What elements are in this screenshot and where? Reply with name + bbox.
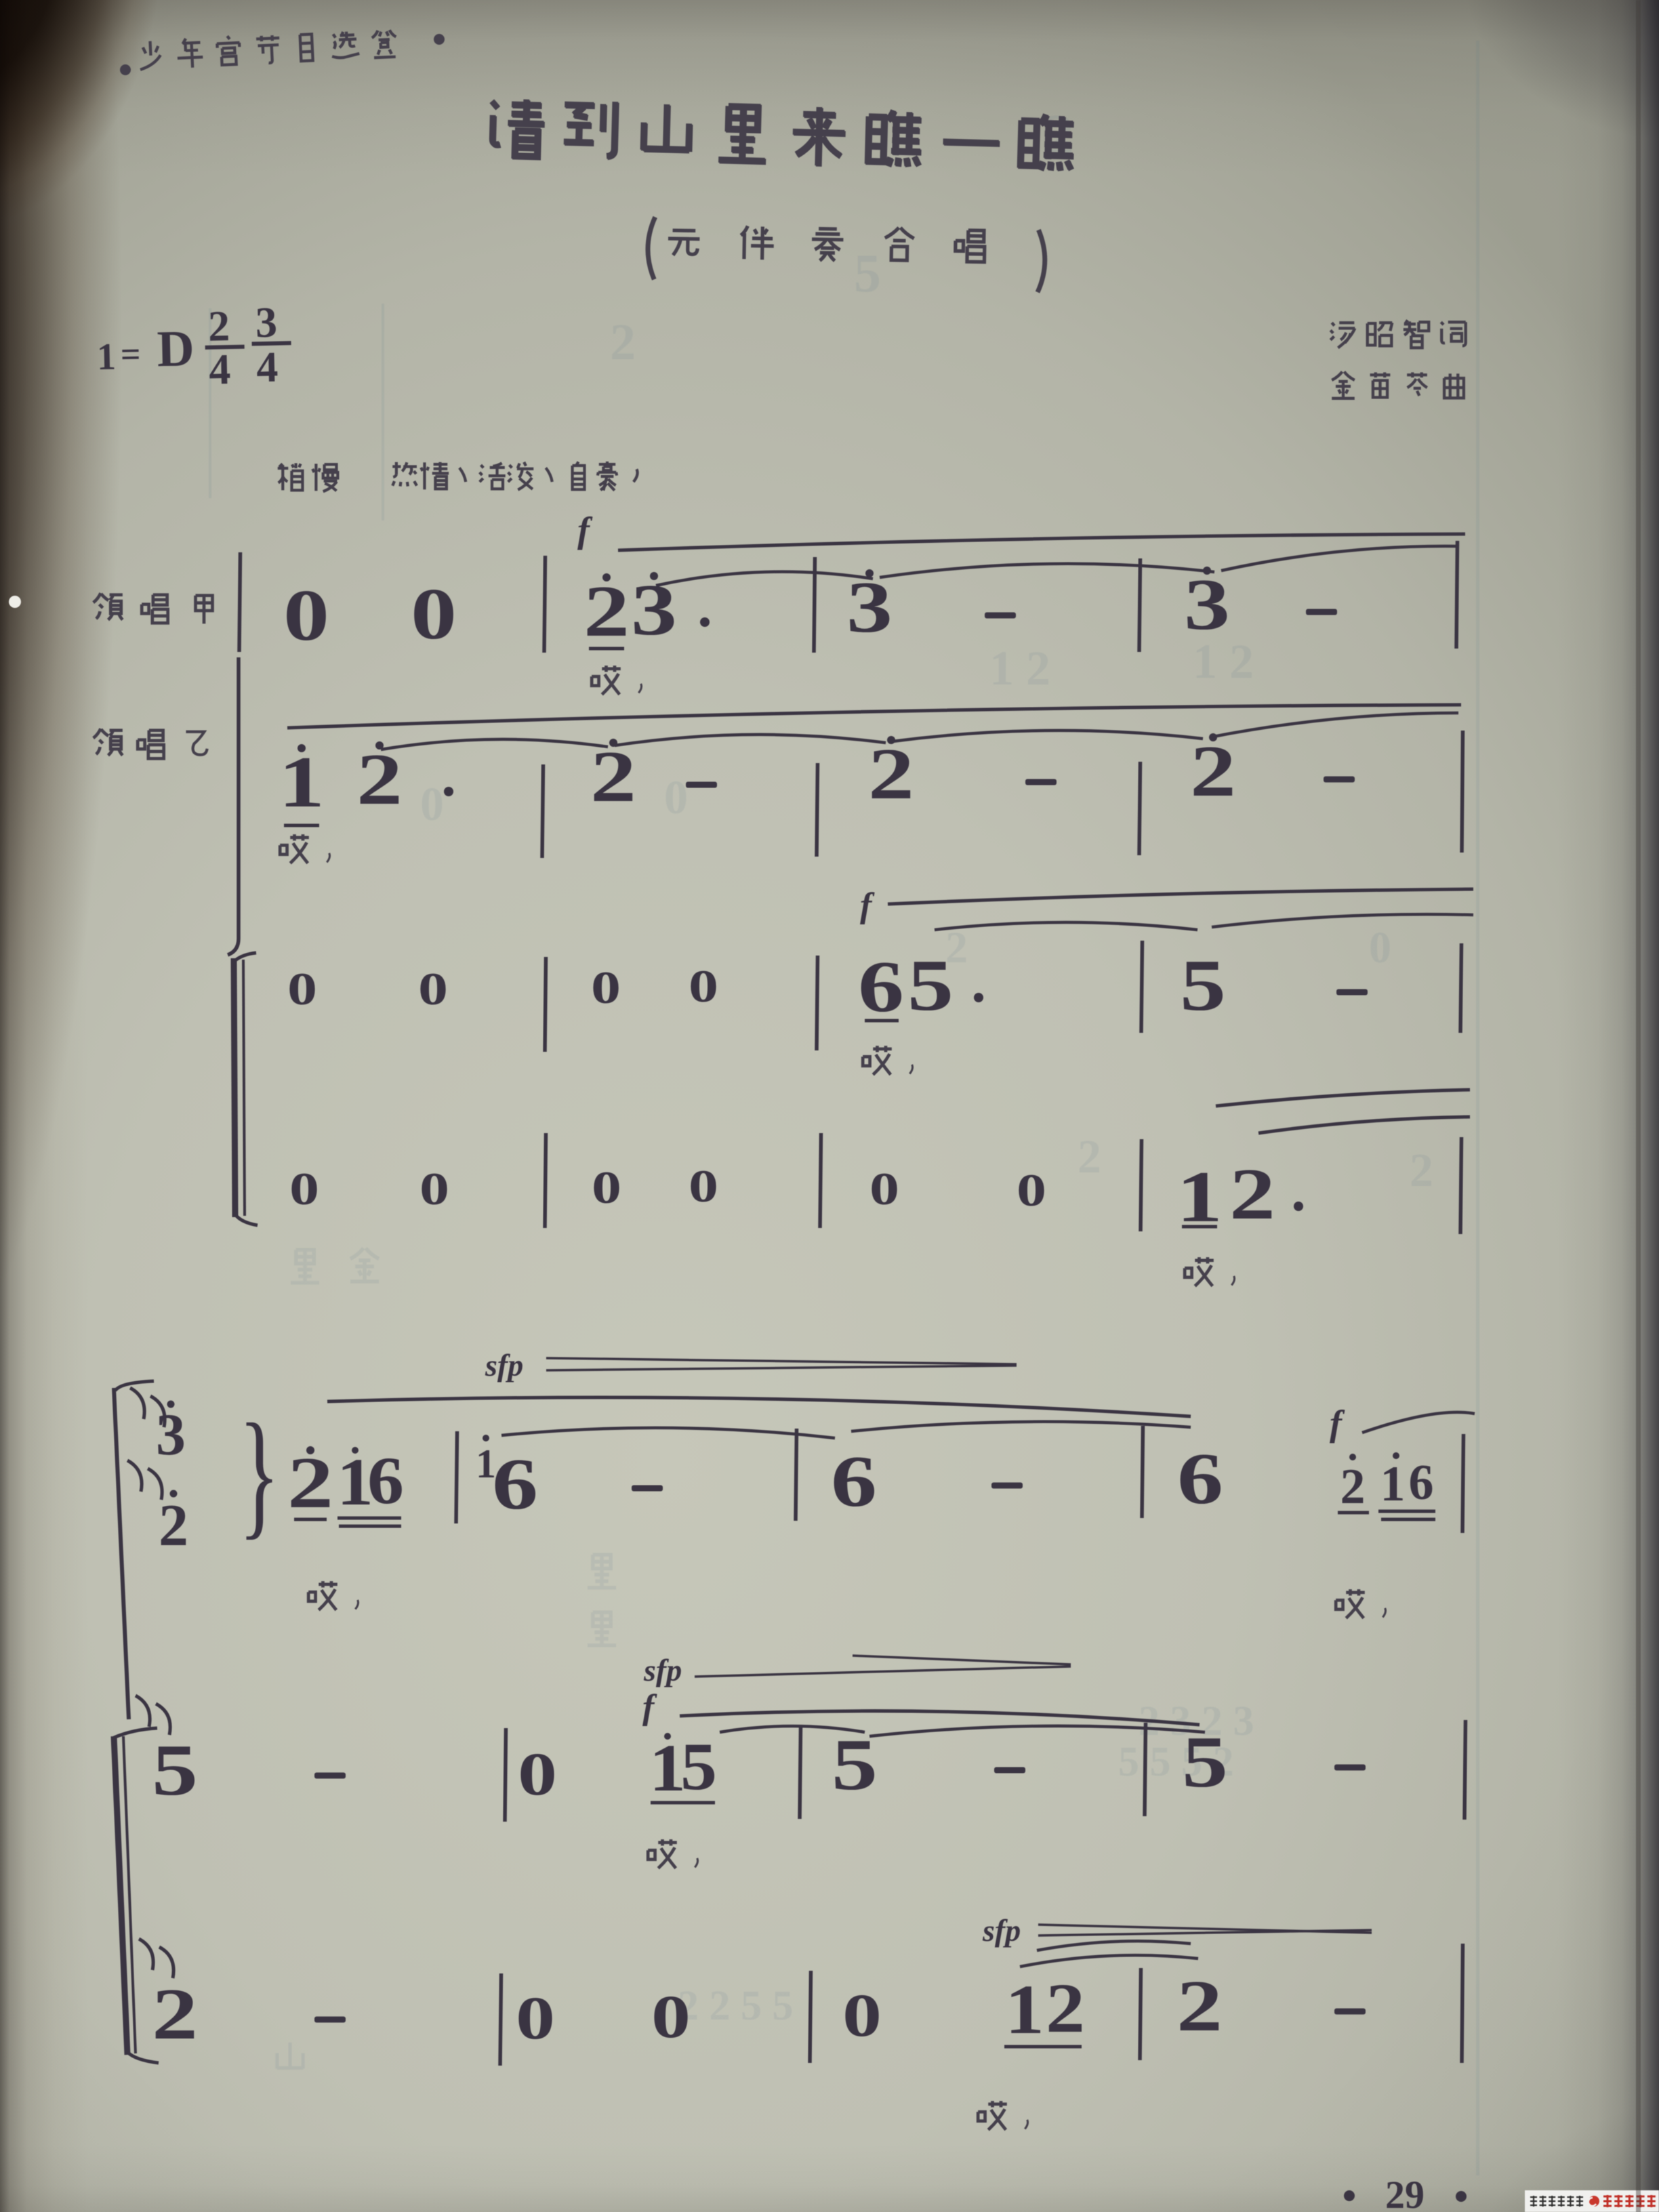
svg-text:5: 5: [907, 945, 954, 1026]
svg-text:5: 5: [1182, 1722, 1228, 1803]
svg-text:2: 2: [1176, 1966, 1223, 2047]
svg-text:0: 0: [1017, 1164, 1046, 1216]
svg-text:2: 2: [1046, 1969, 1085, 2047]
svg-text:f: f: [1330, 1403, 1345, 1443]
svg-text:0: 0: [420, 779, 444, 831]
svg-text:0: 0: [518, 1741, 557, 1808]
svg-text:3: 3: [255, 298, 277, 347]
svg-text:5: 5: [680, 1729, 717, 1804]
svg-text:0: 0: [287, 963, 317, 1015]
svg-text:4: 4: [209, 345, 231, 394]
svg-text:2: 2: [159, 1493, 188, 1559]
svg-text:2: 2: [1078, 1131, 1101, 1183]
svg-text:2: 2: [590, 737, 636, 817]
svg-text:f: f: [577, 510, 593, 550]
svg-text:0: 0: [689, 1160, 718, 1212]
svg-text:0: 0: [516, 1985, 555, 2052]
svg-text:1: 1: [96, 336, 116, 379]
svg-text:0: 0: [289, 1163, 319, 1214]
svg-text:2: 2: [583, 571, 630, 652]
svg-text:D: D: [157, 320, 195, 377]
svg-text:6: 6: [831, 1441, 877, 1522]
svg-text:sfp: sfp: [643, 1653, 682, 1687]
svg-text:f: f: [860, 886, 875, 925]
svg-text:3: 3: [1184, 565, 1230, 645]
svg-text:5: 5: [854, 244, 881, 304]
svg-text:1: 1: [279, 742, 325, 823]
svg-text:2: 2: [868, 734, 914, 815]
svg-text:2: 2: [207, 302, 230, 350]
svg-text:2: 2: [1410, 1145, 1433, 1197]
svg-text:0: 0: [283, 575, 329, 656]
svg-text:29: 29: [1385, 2173, 1425, 2212]
svg-text:0: 0: [1369, 923, 1391, 972]
svg-text:3: 3: [156, 1402, 186, 1468]
svg-text:2: 2: [152, 1974, 198, 2055]
svg-text:0: 0: [591, 962, 621, 1013]
svg-text:=: =: [120, 335, 141, 375]
svg-text:6: 6: [1409, 1455, 1434, 1511]
svg-text:0: 0: [419, 1163, 449, 1214]
svg-text:5: 5: [1180, 945, 1226, 1026]
svg-text:2: 2: [610, 314, 636, 371]
svg-text:6: 6: [1177, 1439, 1223, 1519]
svg-text:1: 1: [1005, 1971, 1044, 2049]
svg-text:0: 0: [592, 1162, 621, 1213]
svg-text:0: 0: [869, 1163, 899, 1214]
svg-text:2: 2: [1229, 1154, 1275, 1235]
svg-text:6: 6: [367, 1443, 404, 1518]
svg-text:2: 2: [1190, 731, 1236, 812]
svg-text:6: 6: [858, 947, 904, 1027]
svg-text:0: 0: [651, 1984, 691, 2051]
svg-text:0: 0: [418, 963, 448, 1015]
svg-text:6: 6: [492, 1444, 538, 1525]
svg-text:sfp: sfp: [485, 1348, 523, 1382]
svg-text:2: 2: [1340, 1459, 1366, 1515]
svg-text:1: 1: [1380, 1456, 1406, 1512]
svg-text:2: 2: [356, 739, 403, 820]
svg-text:0: 0: [689, 960, 718, 1012]
svg-text:5: 5: [152, 1730, 198, 1811]
svg-text:4: 4: [256, 343, 279, 392]
svg-text:1 2: 1 2: [989, 641, 1050, 695]
svg-text:sfp: sfp: [982, 1913, 1021, 1948]
svg-text:0: 0: [411, 574, 457, 655]
svg-text:2 2 5 5: 2 2 5 5: [678, 1983, 794, 2029]
svg-text:0: 0: [664, 772, 688, 824]
svg-text:0: 0: [842, 1982, 882, 2049]
svg-text:}: }: [239, 1395, 280, 1552]
svg-text:f: f: [642, 1688, 657, 1727]
svg-text:2: 2: [287, 1443, 333, 1523]
